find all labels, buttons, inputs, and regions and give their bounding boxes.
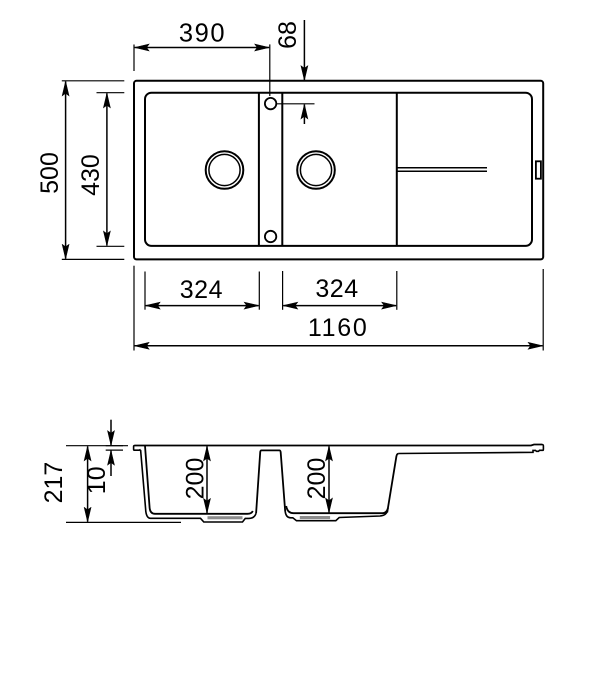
svg-text:68: 68: [274, 21, 302, 49]
svg-text:390: 390: [179, 19, 226, 47]
svg-text:200: 200: [303, 458, 331, 500]
svg-text:200: 200: [181, 458, 209, 500]
svg-text:217: 217: [40, 462, 68, 504]
svg-text:324: 324: [315, 275, 358, 303]
svg-text:430: 430: [77, 154, 105, 196]
svg-text:10: 10: [83, 466, 111, 494]
svg-text:1160: 1160: [308, 314, 369, 342]
svg-text:500: 500: [36, 152, 64, 194]
svg-text:324: 324: [180, 276, 223, 304]
